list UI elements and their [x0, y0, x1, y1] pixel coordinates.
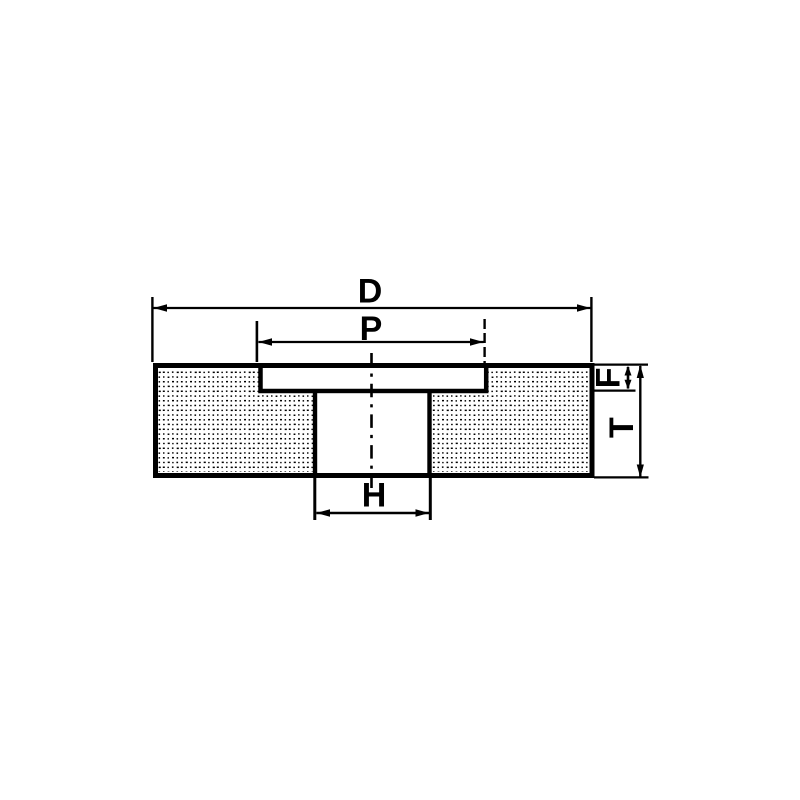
svg-text:P: P	[360, 310, 383, 348]
svg-text:T: T	[603, 417, 641, 438]
svg-text:D: D	[358, 273, 383, 311]
svg-text:H: H	[362, 477, 387, 515]
svg-text:F: F	[590, 368, 628, 389]
